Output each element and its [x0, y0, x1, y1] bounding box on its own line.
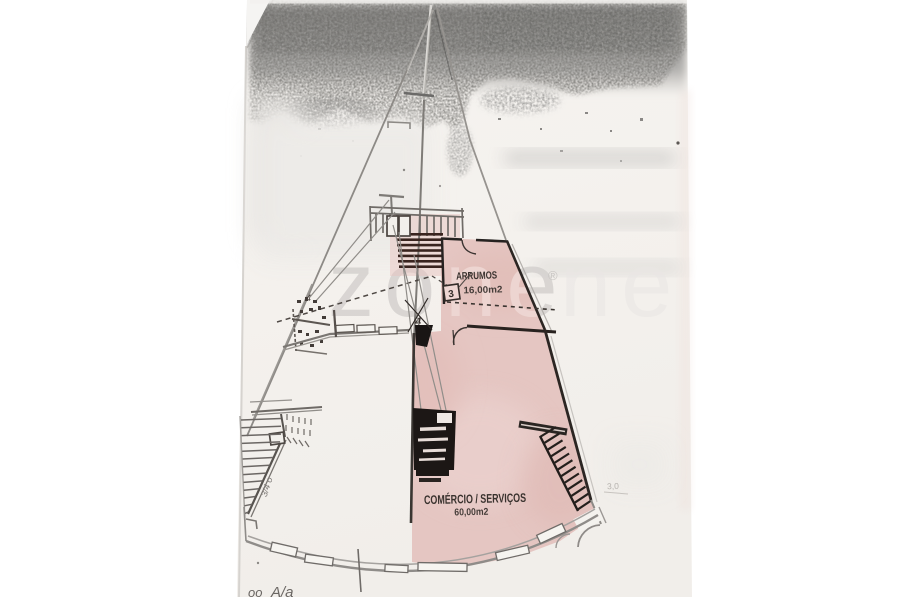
svg-text:60,00m2: 60,00m2 — [454, 507, 489, 519]
svg-text:oo: oo — [248, 585, 262, 597]
svg-text:COMÉRCIO / SERVIÇOS: COMÉRCIO / SERVIÇOS — [424, 490, 526, 507]
svg-text:®: ® — [548, 268, 558, 283]
svg-text:A/a: A/a — [270, 584, 294, 597]
svg-text:ARRUMOS: ARRUMOS — [456, 270, 497, 283]
svg-text:3,0: 3,0 — [607, 481, 619, 491]
svg-text:16,00m2: 16,00m2 — [463, 284, 502, 296]
svg-text:ne: ne — [560, 234, 682, 336]
